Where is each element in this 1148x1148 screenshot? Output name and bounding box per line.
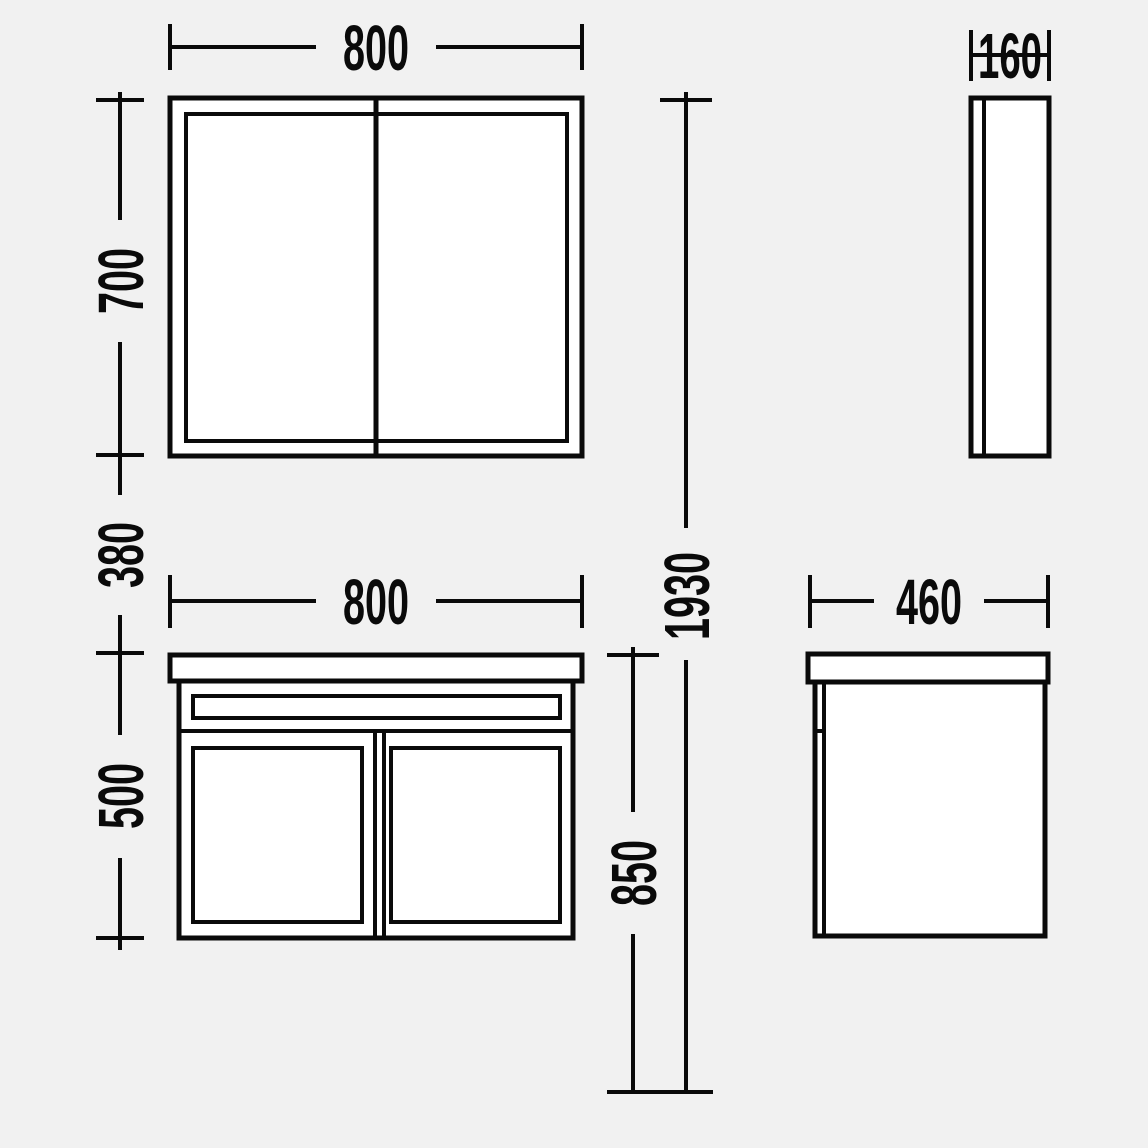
dim-label-mirror-width: 800 [343,12,409,84]
vanity-countertop [170,655,582,681]
dim-label-wall-gap: 380 [85,522,157,588]
dim-label-vanity-height: 500 [85,763,157,829]
vanity-side-countertop [808,654,1048,682]
dim-label-vanity-depth: 460 [896,566,962,638]
bathroom-furniture-dimension-drawing: 800 160 700 380 500 800 [0,0,1148,1148]
vanity-front-view [170,655,582,938]
mirror-cabinet-front-view [170,98,582,456]
vanity-side-view [808,654,1048,936]
dim-label-vanity-width: 800 [343,566,409,638]
dim-label-worktop-height: 850 [598,840,670,906]
mirror-cabinet-side-view [971,98,1049,456]
vanity-side-body [815,682,1045,936]
dim-label-mirror-height: 700 [85,248,157,314]
dimension-drawing-canvas: 800 160 700 380 500 800 [0,0,1148,1148]
dim-mirror-depth: 160 [971,20,1049,92]
dim-label-mirror-depth: 160 [978,20,1042,92]
dim-label-total-height: 1930 [651,552,723,640]
